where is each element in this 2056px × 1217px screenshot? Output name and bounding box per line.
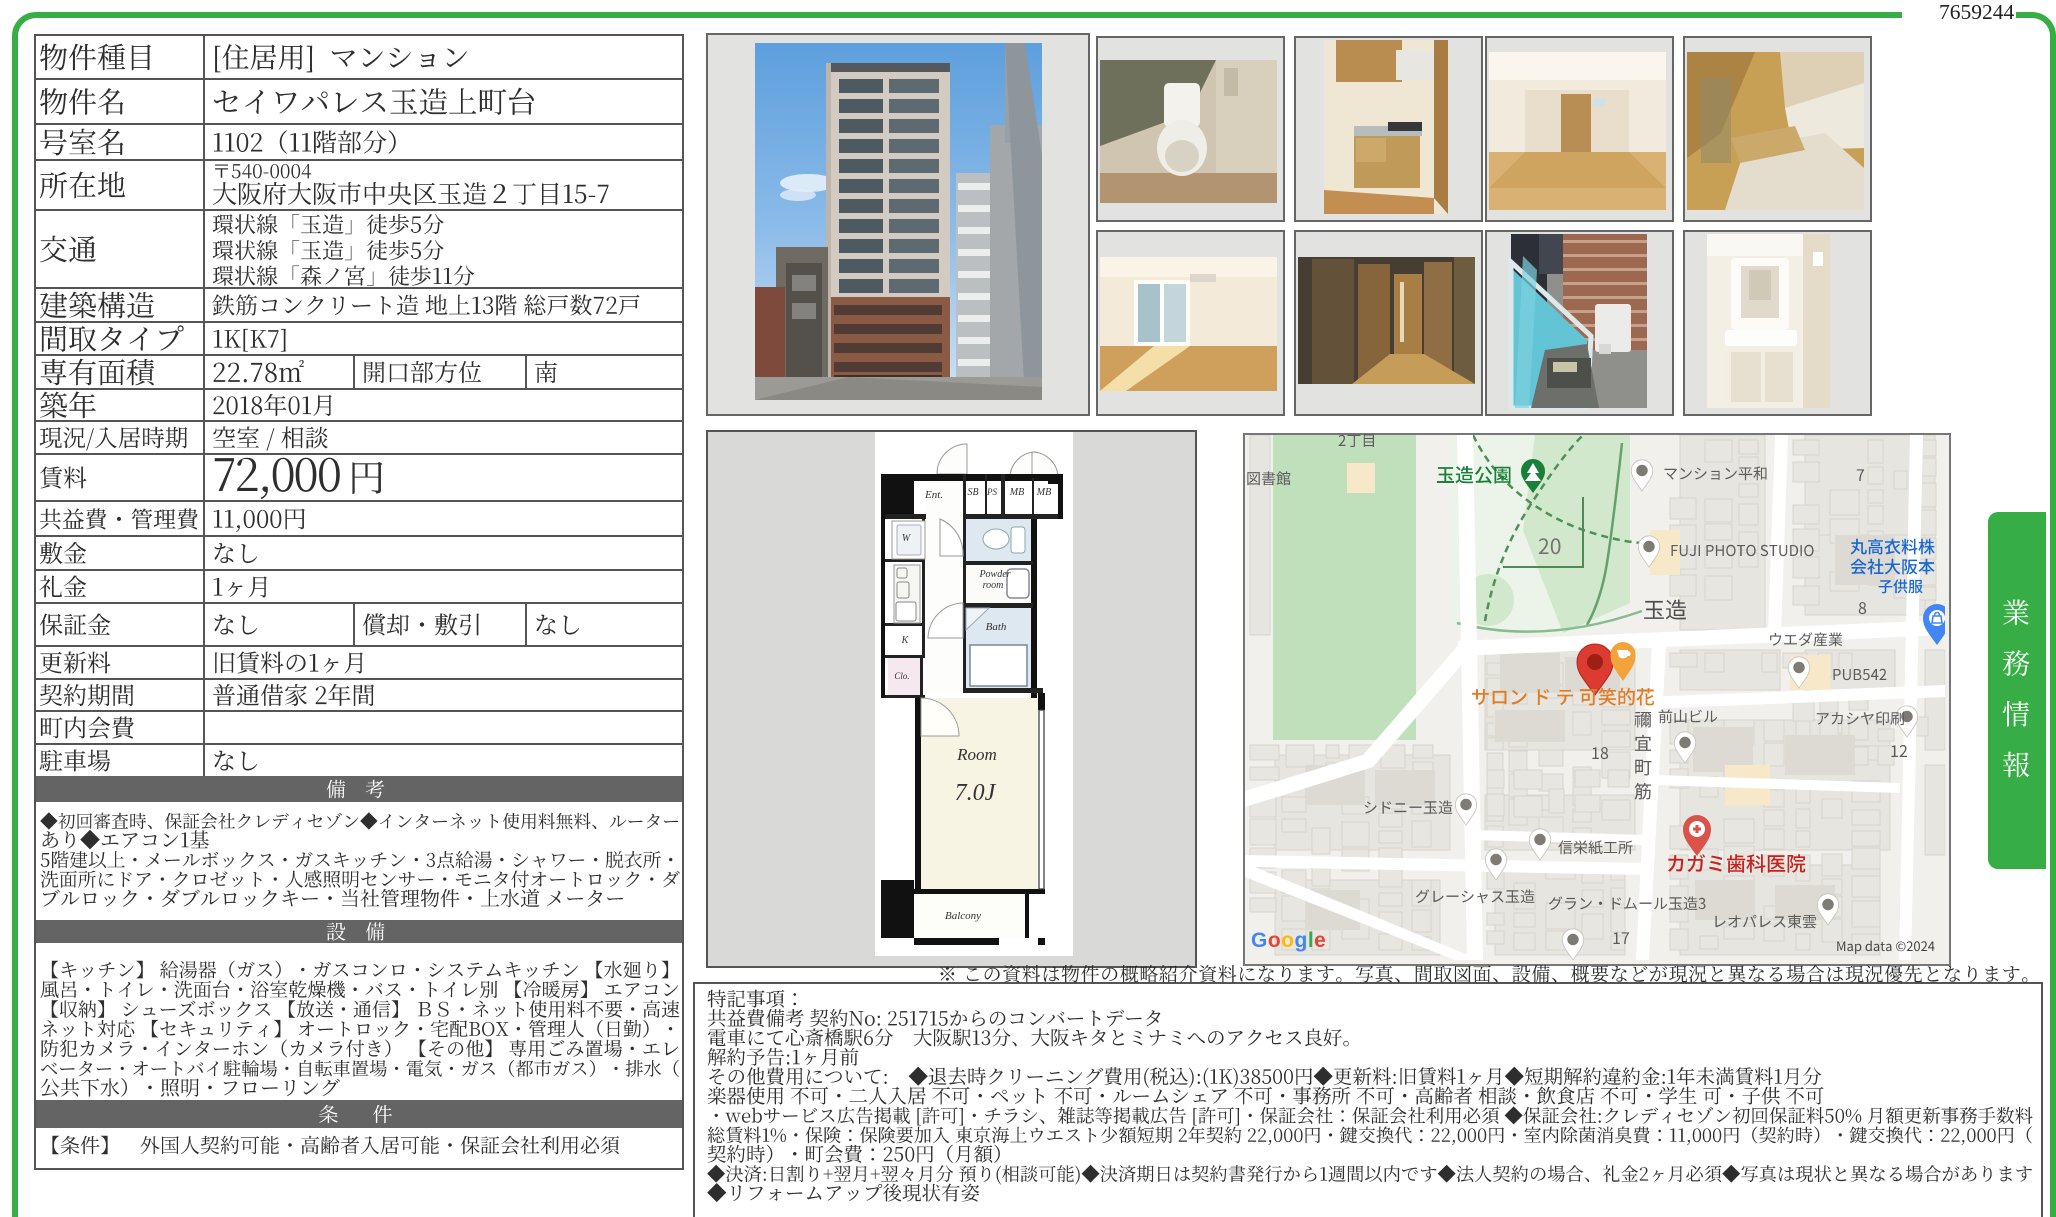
svg-text:PS: PS	[986, 487, 997, 497]
svg-text:Ent.: Ent.	[924, 489, 943, 501]
svg-text:W: W	[902, 533, 912, 544]
svg-text:Bath: Bath	[986, 621, 1007, 633]
svg-text:Powder: Powder	[978, 569, 1010, 580]
svg-text:room: room	[983, 580, 1004, 591]
svg-text:Clo.: Clo.	[894, 671, 909, 681]
svg-text:Balcony: Balcony	[945, 910, 981, 922]
svg-text:7.0J: 7.0J	[955, 780, 997, 806]
svg-text:SB: SB	[967, 487, 978, 498]
svg-text:MB: MB	[1036, 487, 1051, 498]
svg-text:MB: MB	[1009, 487, 1024, 498]
svg-text:Room: Room	[956, 745, 997, 764]
svg-text:K: K	[901, 635, 910, 646]
